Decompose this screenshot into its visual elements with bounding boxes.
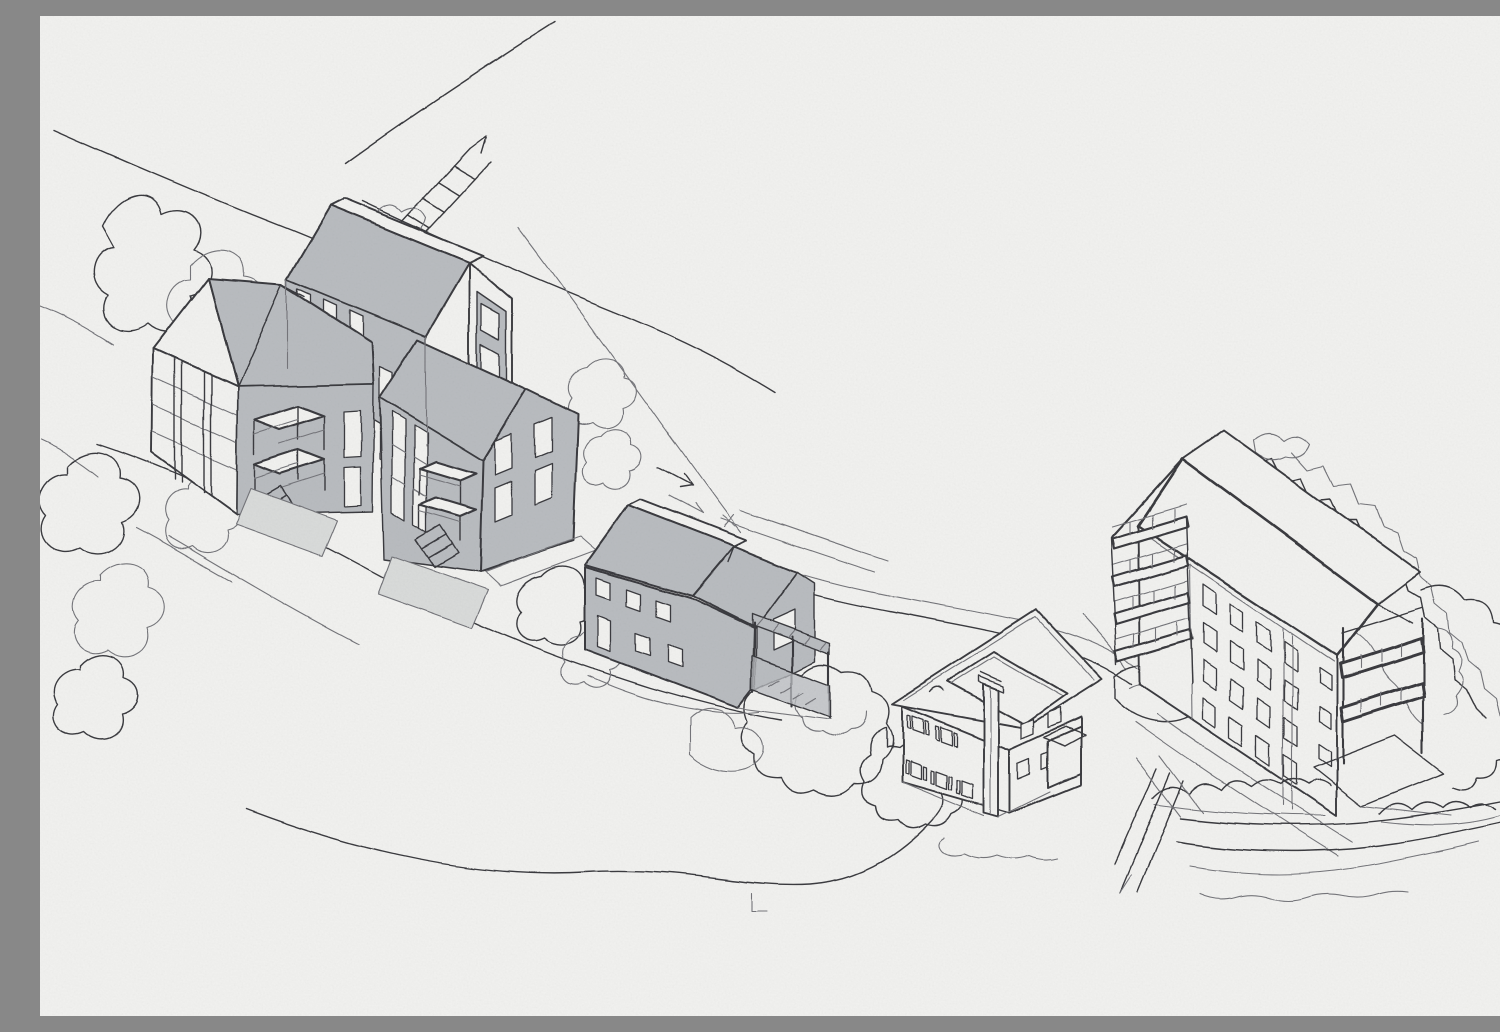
paper-grain-overlay xyxy=(40,16,1500,1016)
sketch-figure: Architectural site sketch Hand-drawn axo… xyxy=(40,16,1500,1016)
sketch-canvas: Architectural site sketch Hand-drawn axo… xyxy=(40,16,1500,1016)
